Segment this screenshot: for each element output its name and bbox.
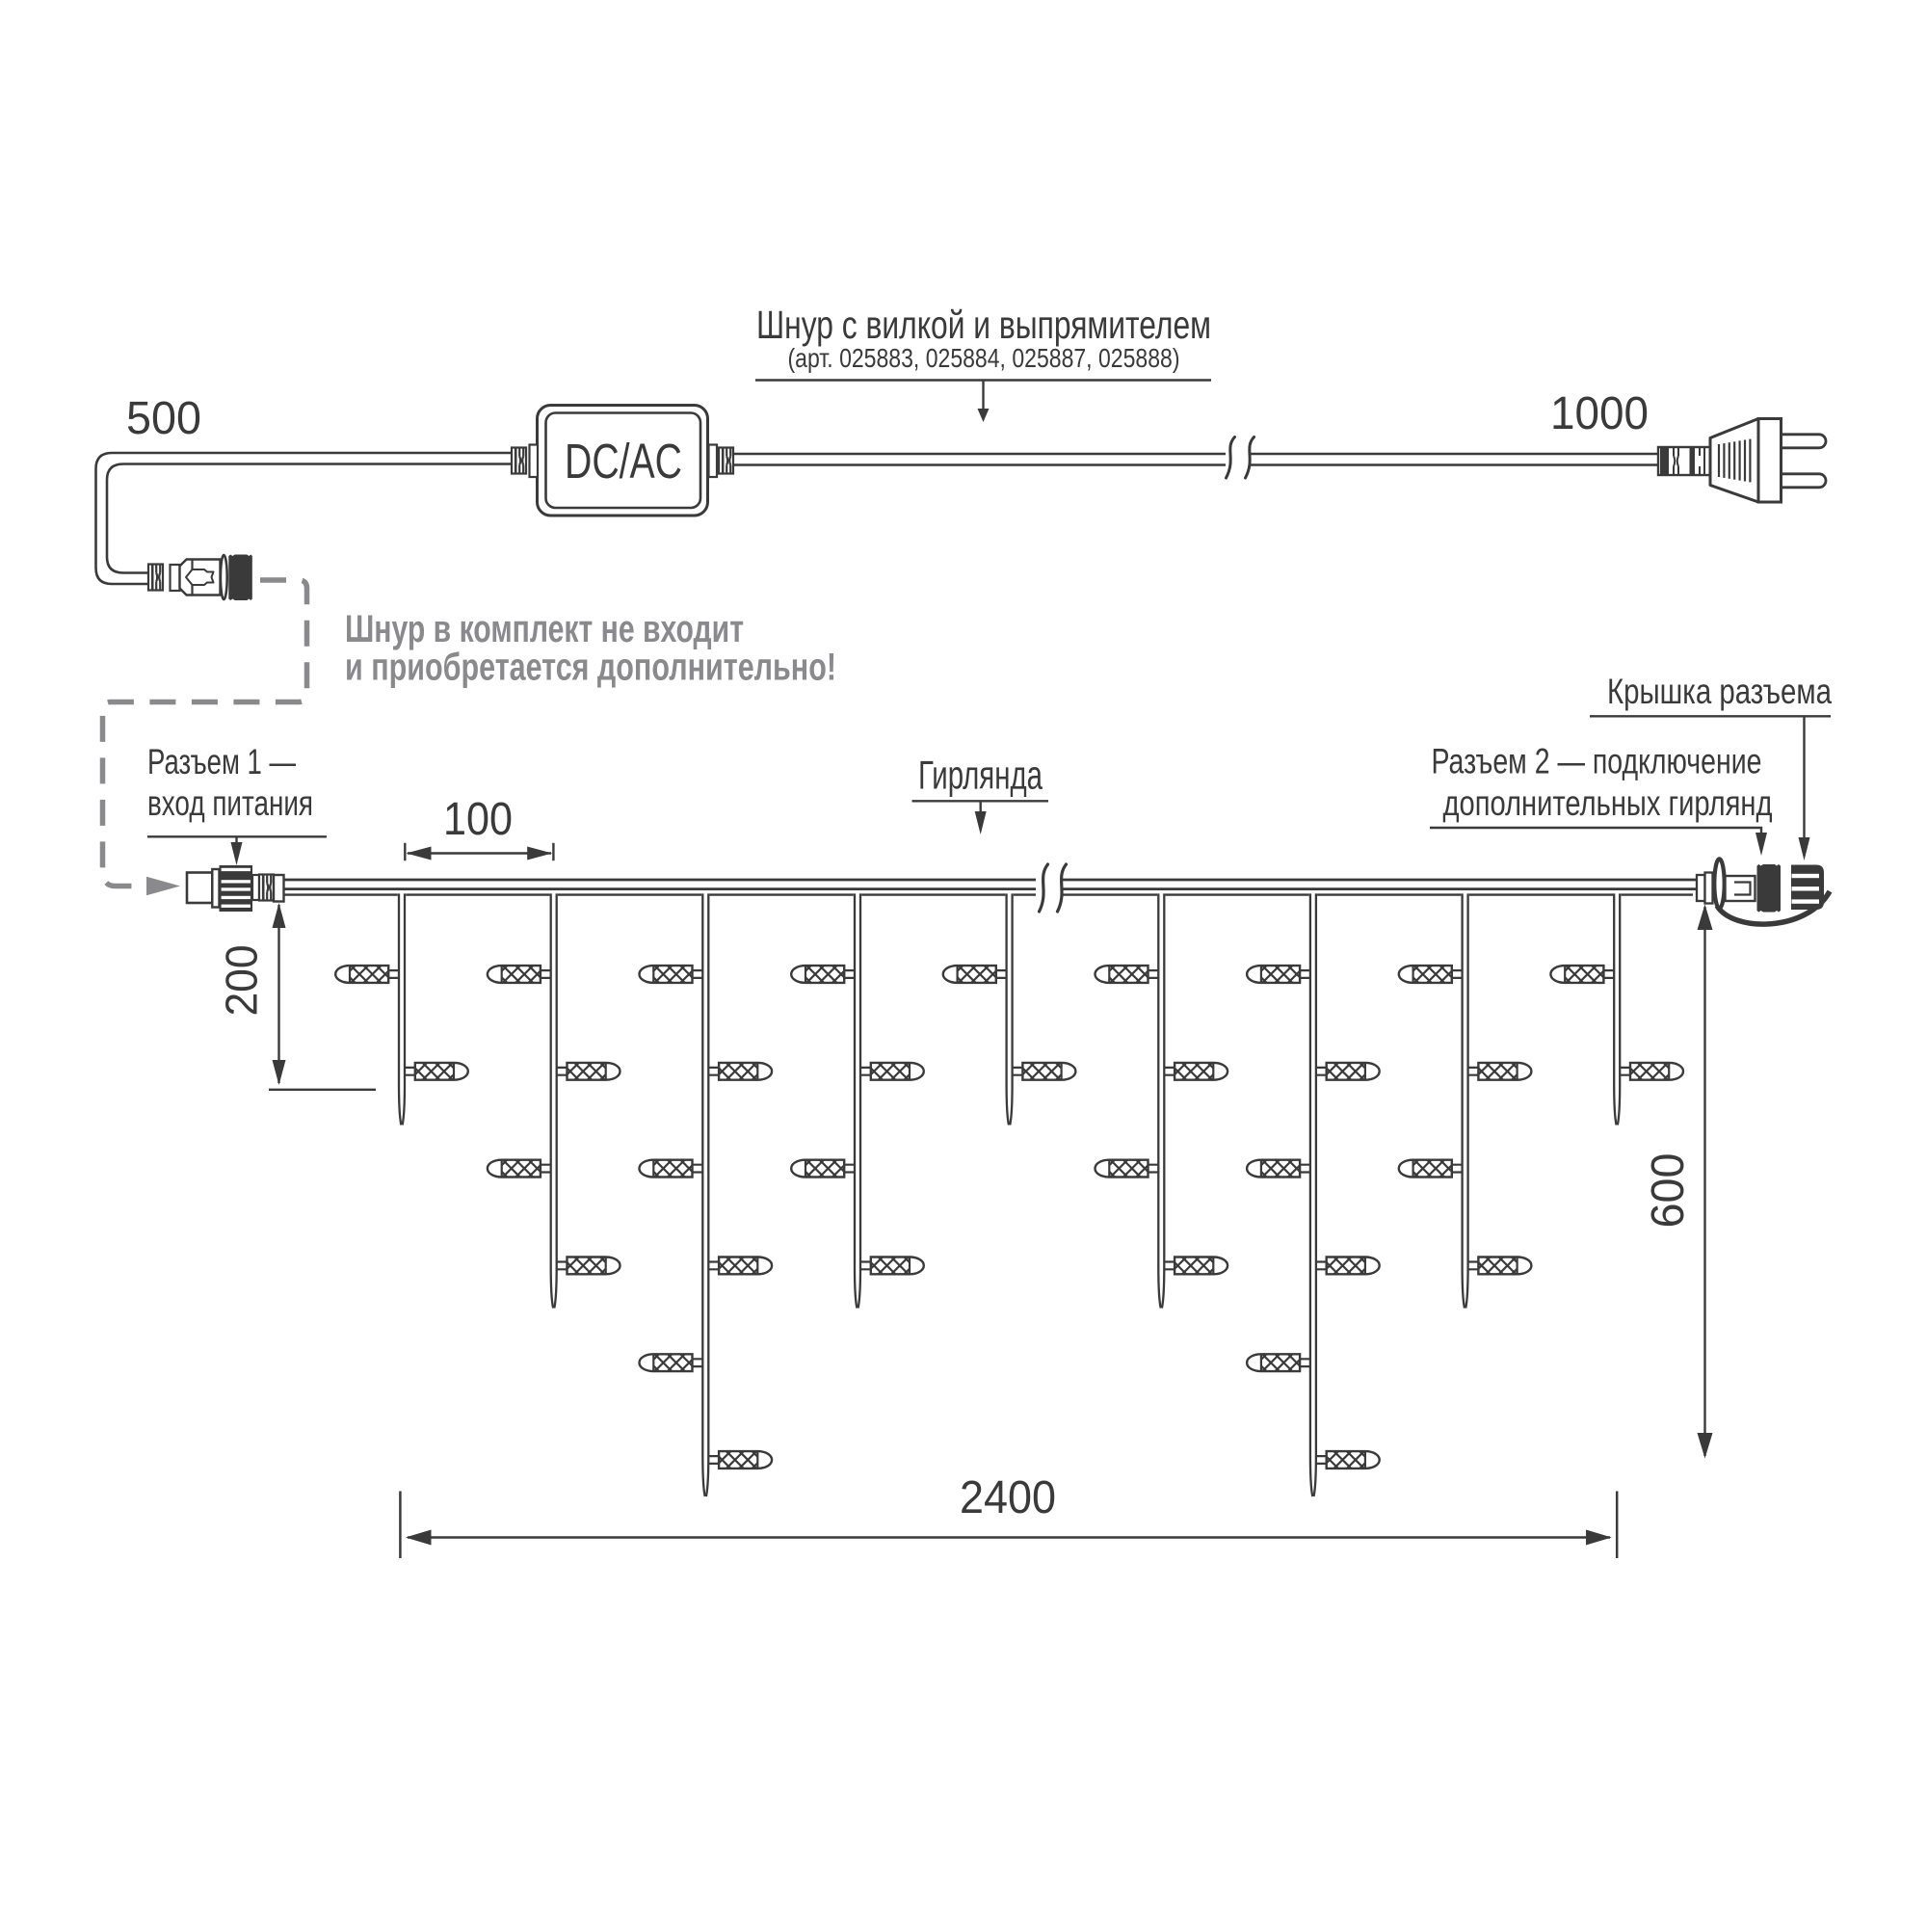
svg-text:2400: 2400 bbox=[960, 1472, 1056, 1523]
svg-text:DC/AC: DC/AC bbox=[565, 434, 682, 489]
svg-text:Разъем 2 — подключение: Разъем 2 — подключение bbox=[1432, 742, 1762, 781]
svg-text:200: 200 bbox=[217, 945, 267, 1017]
svg-text:Крышка разъема: Крышка разъема bbox=[1607, 672, 1832, 711]
svg-text:600: 600 bbox=[1643, 1153, 1694, 1229]
svg-text:100: 100 bbox=[443, 794, 513, 845]
svg-text:Шнур в комплект не входит: Шнур в комплект не входит bbox=[345, 608, 744, 650]
svg-text:Гирлянда: Гирлянда bbox=[918, 753, 1043, 798]
svg-text:и приобретается дополнительно!: и приобретается дополнительно! bbox=[345, 647, 836, 689]
svg-text:(арт. 025883, 025884, 025887,: (арт. 025883, 025884, 025887, 025888) bbox=[788, 343, 1180, 373]
svg-text:500: 500 bbox=[126, 393, 201, 444]
svg-text:дополнительных гирлянд: дополнительных гирлянд bbox=[1443, 783, 1773, 823]
svg-text:Шнур с вилкой и выпрямителем: Шнур с вилкой и выпрямителем bbox=[756, 303, 1211, 347]
svg-text:1000: 1000 bbox=[1550, 388, 1649, 439]
svg-text:Разъем 1 —: Разъем 1 — bbox=[147, 742, 296, 781]
svg-text:вход питания: вход питания bbox=[147, 783, 313, 823]
